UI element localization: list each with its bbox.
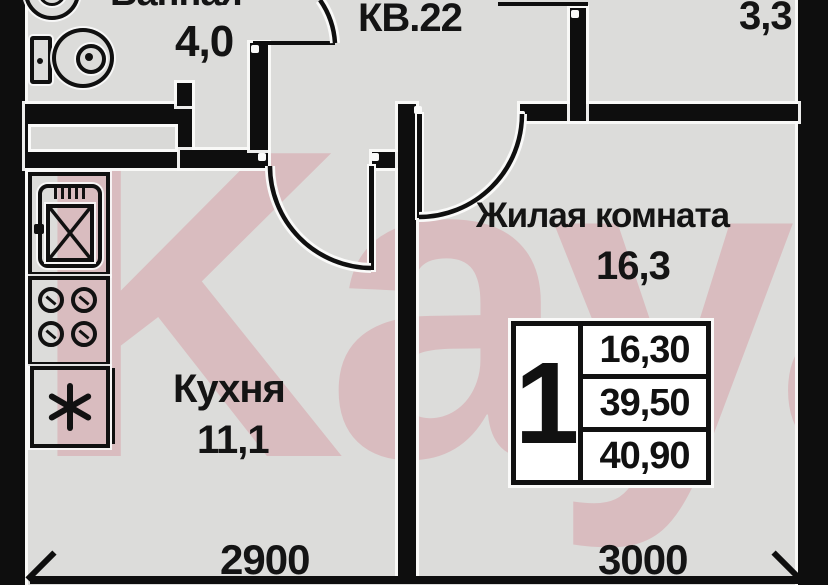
wall-bathroom-stub bbox=[177, 83, 192, 106]
area-row-without-balcony: 39,50 bbox=[583, 379, 706, 432]
balcony-area: 3,3 bbox=[739, 0, 792, 39]
area-row-living: 16,30 bbox=[583, 326, 706, 379]
apartment-summary-table: 1 16,30 39,50 40,90 bbox=[511, 321, 711, 485]
kitchen-door-jamb bbox=[258, 153, 266, 161]
living-door-leaf bbox=[417, 114, 422, 218]
toilet-bowl-dot bbox=[85, 53, 93, 61]
stove-burner bbox=[71, 321, 97, 347]
wall-central bbox=[398, 104, 416, 577]
area-row-total: 40,90 bbox=[583, 432, 706, 480]
living-door-hinge bbox=[414, 106, 422, 114]
wall-right bbox=[798, 0, 828, 585]
stove-icon bbox=[28, 276, 110, 366]
balcony-partition-dot bbox=[571, 10, 579, 18]
rooms-count-cell: 1 bbox=[516, 326, 583, 480]
kitchen-sink-basin bbox=[46, 204, 94, 262]
floor-plan: Kayan bbox=[0, 0, 828, 585]
balcony-glazing-line bbox=[498, 2, 588, 6]
entry-door-line bbox=[253, 41, 335, 45]
wall-left bbox=[0, 0, 25, 585]
living-door-jamb bbox=[517, 111, 525, 119]
wall-niche bbox=[31, 127, 175, 149]
apartment-number: КВ.22 bbox=[358, 0, 462, 41]
wall-entry-left bbox=[250, 43, 268, 150]
living-room-area: 16,3 bbox=[596, 244, 670, 289]
kitchen-sink-faucet bbox=[34, 224, 44, 234]
kitchen-door-hinge bbox=[371, 153, 379, 161]
wall-balcony-partition bbox=[570, 8, 586, 121]
kitchen-area: 11,1 bbox=[197, 418, 269, 463]
kitchen-label: Кухня bbox=[173, 367, 285, 412]
counter-edge-line bbox=[112, 368, 115, 444]
dimension-line bbox=[30, 576, 798, 584]
living-room-label: Жилая комната bbox=[476, 196, 729, 236]
stove-burner bbox=[71, 287, 97, 313]
area-rows: 16,30 39,50 40,90 bbox=[583, 326, 706, 480]
wall-kitchen-top bbox=[180, 150, 268, 168]
toilet-tank-dot bbox=[37, 58, 43, 64]
bathroom-area: 4,0 bbox=[175, 17, 233, 67]
kitchen-sink-drainboard bbox=[54, 187, 88, 199]
wall-hall-living bbox=[520, 104, 798, 121]
entry-door-arc bbox=[320, 0, 335, 43]
entry-door-hinge bbox=[251, 45, 259, 53]
stove-burner bbox=[38, 321, 64, 347]
stove-burner bbox=[38, 287, 64, 313]
bathroom-label: Ванная bbox=[110, 0, 242, 15]
kitchen-door-leaf bbox=[369, 166, 374, 270]
